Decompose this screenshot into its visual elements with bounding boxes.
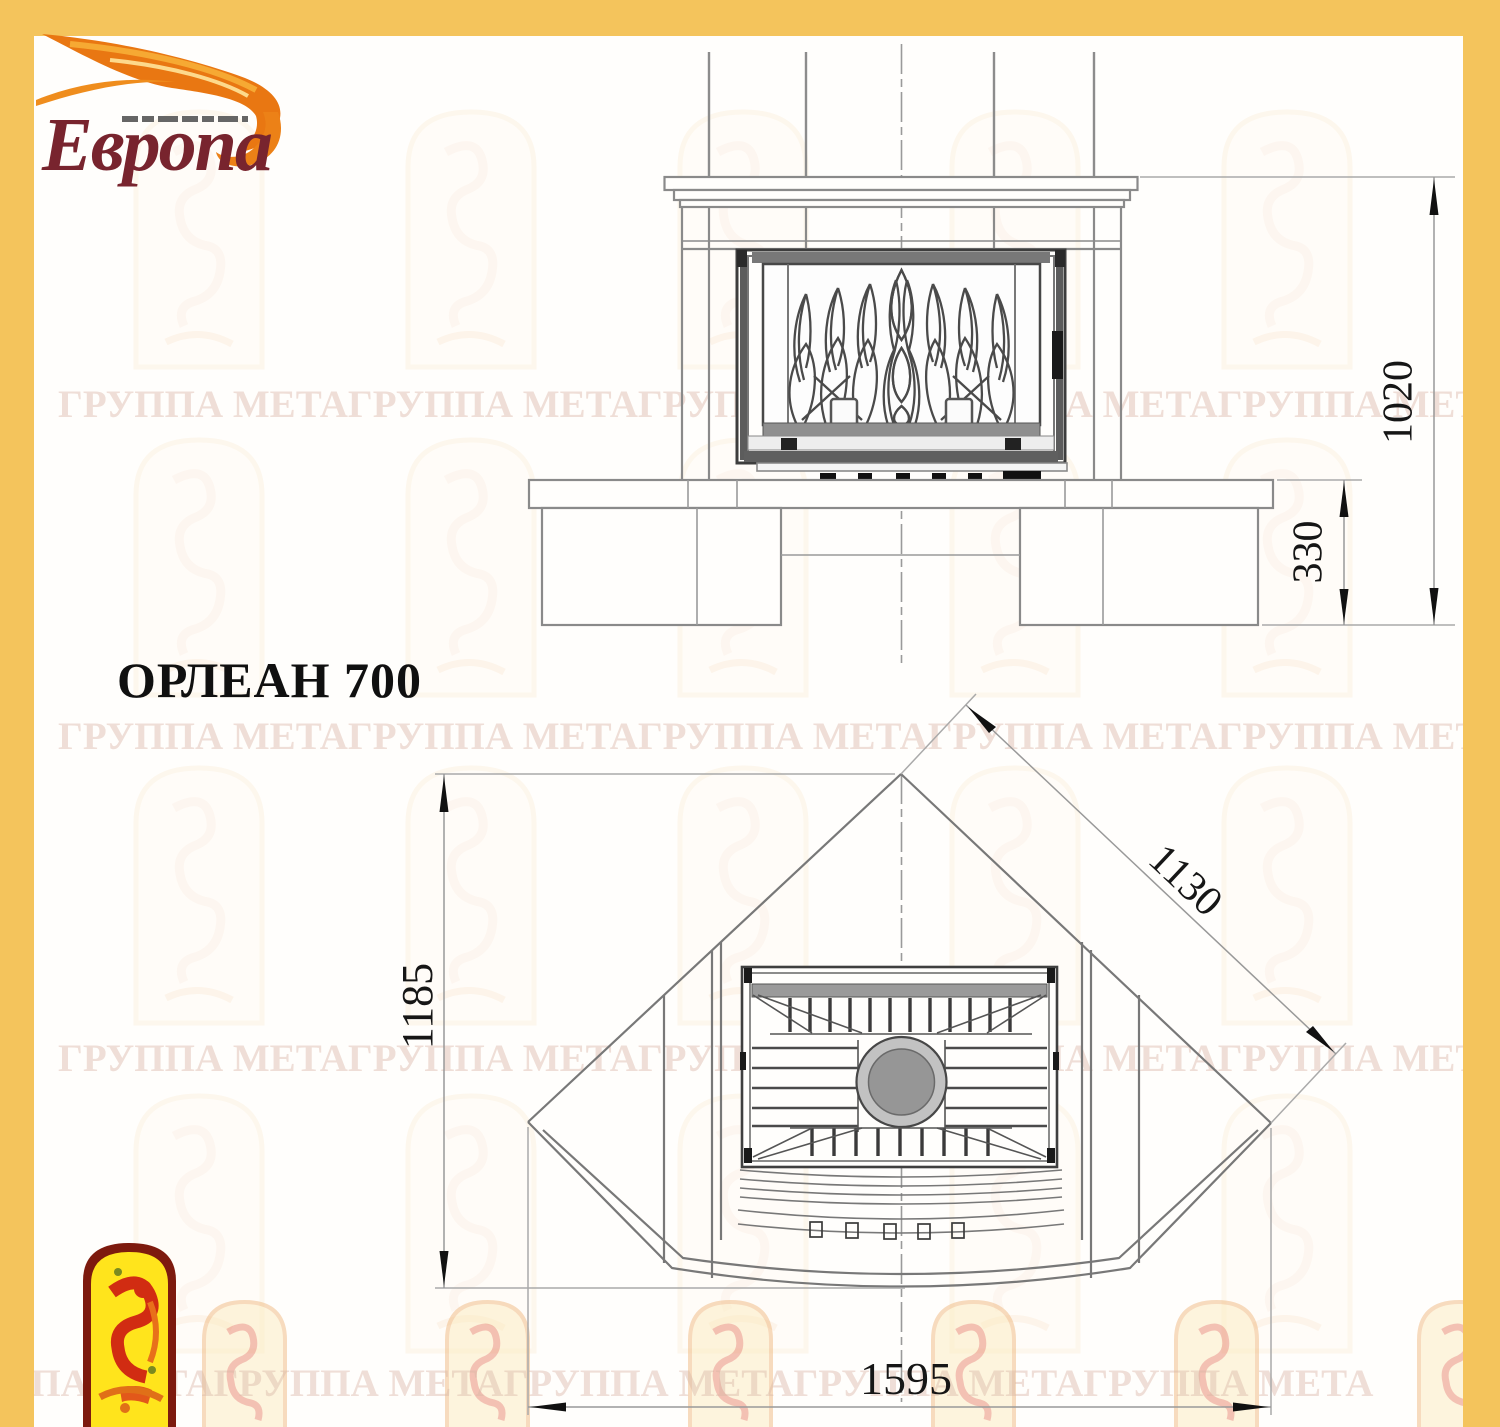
svg-text:1595: 1595: [860, 1353, 952, 1404]
svg-text:Европа: Европа: [41, 103, 272, 187]
svg-text:ОРЛЕАН 700: ОРЛЕАН 700: [117, 652, 422, 708]
svg-text:ГРУППА МЕТАГРУППА МЕТАГРУППА М: ГРУППА МЕТАГРУППА МЕТАГРУППА МЕТАГРУППА …: [58, 715, 1481, 758]
svg-text:1020: 1020: [1376, 360, 1422, 444]
svg-text:ППА МЕТАГРУППА МЕТАГРУППА МЕТА: ППА МЕТАГРУППА МЕТАГРУППА МЕТАГРУППА МЕТ…: [0, 1362, 1373, 1405]
svg-text:1185: 1185: [393, 963, 442, 1049]
svg-text:330: 330: [1286, 521, 1332, 584]
